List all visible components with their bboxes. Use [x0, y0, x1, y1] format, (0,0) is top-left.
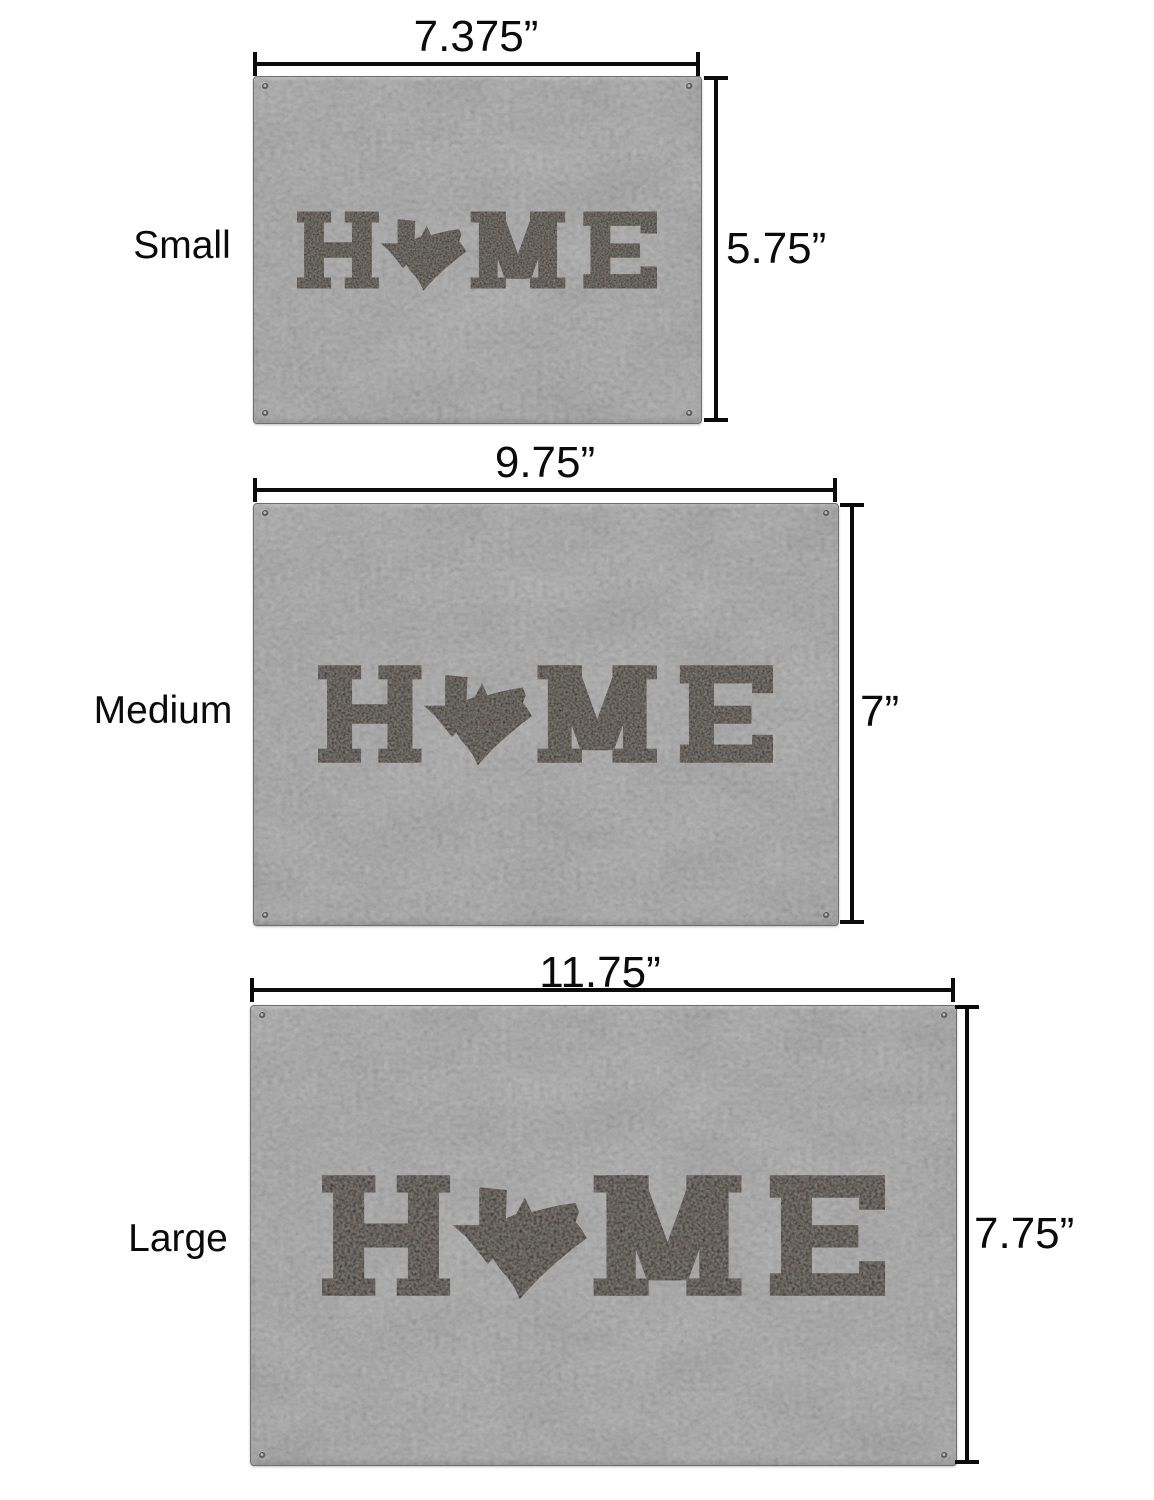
grommet-hole — [262, 912, 269, 919]
grommet-hole — [941, 1012, 948, 1019]
grommet-hole — [262, 510, 269, 517]
grommet-hole — [941, 1452, 948, 1459]
height-dimension-label: 7.75” — [974, 1212, 1074, 1256]
home-texas-engraving — [297, 208, 657, 292]
height-dimension-line — [965, 1005, 969, 1464]
plaque-medium — [253, 503, 839, 926]
grommet-hole — [823, 912, 830, 919]
grommet-hole — [259, 1452, 266, 1459]
grommet-hole — [686, 410, 693, 417]
height-dimension-label: 5.75” — [726, 227, 826, 271]
home-texas-engraving — [318, 661, 773, 767]
grommet-hole — [262, 83, 269, 90]
width-dimension-label: 7.375” — [414, 15, 539, 59]
grommet-hole — [823, 510, 830, 517]
width-dimension-line — [253, 488, 837, 492]
plaque-small — [253, 76, 702, 424]
height-dimension-line — [714, 76, 718, 422]
plaque-large — [250, 1005, 957, 1466]
size-comparison-figure: Small 7.375” 5.75” Medium 9.75” — [0, 0, 1154, 1500]
height-dimension-label: 7” — [860, 690, 899, 734]
size-name-label: Small — [107, 225, 257, 268]
grommet-hole — [262, 410, 269, 417]
height-dimension-line — [850, 503, 854, 924]
home-texas-engraving — [322, 1170, 885, 1301]
width-dimension-line — [250, 988, 955, 992]
width-dimension-label: 9.75” — [495, 441, 595, 485]
size-name-label: Medium — [88, 690, 238, 733]
grommet-hole — [259, 1012, 266, 1019]
grommet-hole — [686, 83, 693, 90]
width-dimension-line — [253, 62, 700, 66]
size-name-label: Large — [103, 1218, 253, 1261]
